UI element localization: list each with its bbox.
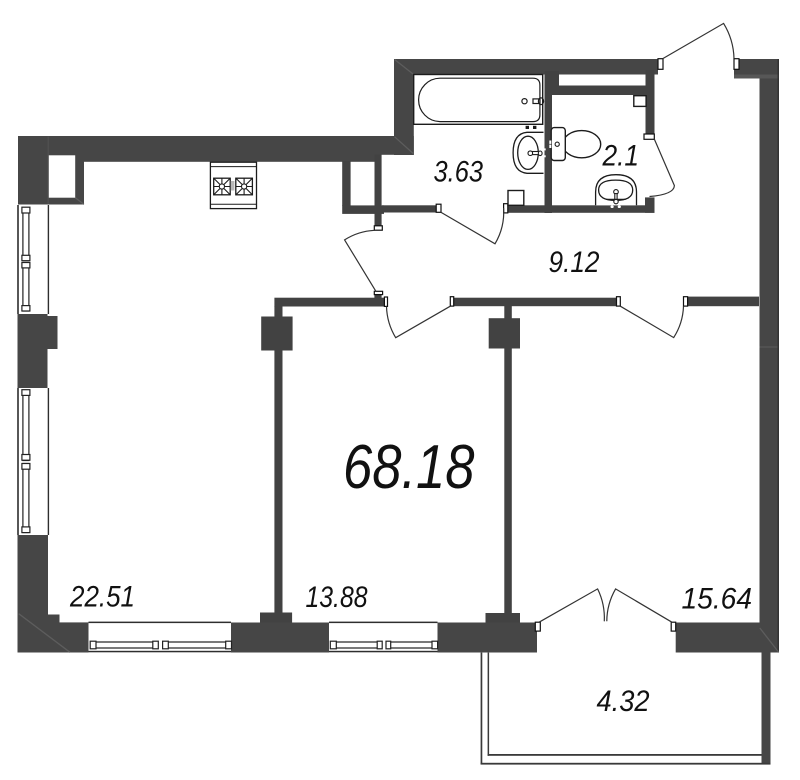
svg-text:2.1: 2.1 bbox=[602, 139, 639, 172]
svg-text:68.18: 68.18 bbox=[343, 432, 475, 502]
svg-text:3.63: 3.63 bbox=[434, 156, 484, 189]
svg-text:13.88: 13.88 bbox=[306, 581, 368, 614]
svg-text:15.64: 15.64 bbox=[682, 583, 753, 616]
svg-text:9.12: 9.12 bbox=[549, 246, 600, 279]
svg-text:4.32: 4.32 bbox=[597, 685, 650, 718]
svg-text:22.51: 22.51 bbox=[69, 581, 135, 614]
